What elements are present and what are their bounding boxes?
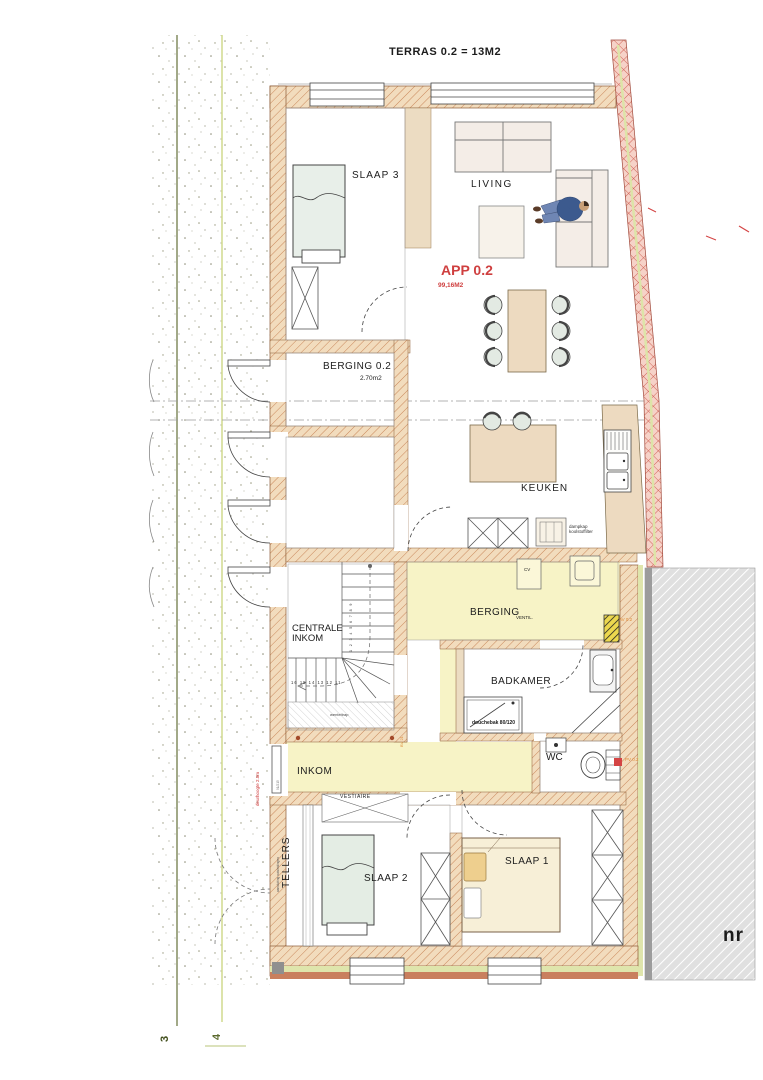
neighbor-building	[645, 568, 755, 980]
kitchen-sink	[604, 430, 631, 492]
room-label-vestiaire: VESTIAIRE	[340, 795, 371, 801]
washing-machine	[570, 556, 600, 586]
furniture-slaap3	[292, 165, 345, 329]
room-label-berging02: BERGING 0.2	[323, 361, 391, 372]
duct-code-berging: AV 0.2	[619, 618, 632, 623]
furniture-living	[455, 122, 608, 267]
door-height-note: deurhoogte 2.5m	[256, 772, 261, 806]
furniture-dining	[484, 290, 570, 372]
room-label-keuken: KEUKEN	[521, 483, 568, 494]
hood-appliance	[536, 518, 566, 546]
shower-note: douchebak 80/120	[472, 721, 515, 727]
hood-note: dampkap koolstoffilter	[569, 525, 593, 535]
furniture-slaap2	[322, 794, 450, 945]
vent-shaft	[604, 615, 619, 642]
grid-label-4: 4	[211, 1034, 223, 1040]
wardrobe-icon	[292, 267, 318, 329]
window-bottom-1	[350, 958, 404, 984]
room-area-berging02: 2.70m2	[360, 375, 382, 382]
washbasin	[590, 650, 616, 692]
door-size-note: 91/215	[277, 780, 281, 790]
window-top-2	[431, 83, 594, 104]
room-label-slaap3: SLAAP 3	[352, 170, 399, 181]
bed-icon	[293, 165, 345, 263]
kitchen-island	[470, 425, 556, 482]
stair-hatch-label: wenteltrap	[330, 713, 348, 717]
wardrobe-icon	[421, 853, 450, 945]
apartment-code: APP 0.2	[441, 263, 493, 278]
wardrobe-icon	[592, 810, 623, 945]
door-code-note: BV 21	[400, 736, 404, 747]
cv-unit	[517, 559, 541, 589]
room-label-slaap2: SLAAP 2	[364, 873, 408, 884]
door-arc-keuken	[408, 507, 452, 551]
room-label-centrale-inkom: CENTRALE INKOM	[292, 624, 350, 645]
dining-table	[508, 290, 546, 372]
neighbor-number-label: nr	[723, 926, 744, 947]
ventil-label: VENTIL.	[516, 616, 533, 621]
floor-plan-drawing: 16 15 14 13 12 11 1 2 3 4 5 6 7 8 9	[0, 0, 763, 1080]
sofa-icon	[455, 122, 608, 267]
shower-tray	[464, 697, 522, 733]
coffee-table	[479, 206, 524, 258]
terras-label: TERRAS 0.2 = 13M2	[330, 46, 560, 58]
corner-block	[272, 962, 284, 974]
window-bottom-2	[488, 958, 541, 984]
bed-icon	[322, 835, 374, 935]
double-bed-icon	[462, 838, 560, 932]
floor-plan-page: 16 15 14 13 12 11 1 2 3 4 5 6 7 8 9	[0, 0, 763, 1080]
room-label-badkamer: BADKAMER	[491, 676, 551, 687]
duct-marker-wc	[614, 758, 622, 766]
grid-label-3: 3	[159, 1036, 171, 1042]
duct-code-wc: PV 0.2	[625, 758, 639, 763]
cv-label: CV	[524, 568, 530, 573]
terrain-strip	[150, 35, 270, 985]
room-label-living: LIVING	[471, 179, 513, 190]
room-label-slaap1: SLAAP 1	[505, 856, 549, 867]
tellers-note: aansluiting nutsleidingen	[277, 857, 281, 892]
stair-step-numbers: 16 15 14 13 12 11	[291, 680, 341, 685]
window-top-1	[310, 83, 384, 106]
apartment-area: 99,16M2	[438, 282, 463, 289]
room-label-tellers: TELLERS	[281, 837, 292, 888]
furniture-keuken	[468, 405, 646, 553]
room-label-wc: WC	[546, 752, 563, 763]
room-label-berging: BERGING	[470, 607, 520, 618]
door-arc-slaap3	[362, 287, 407, 332]
kitchen-cabinets	[468, 518, 528, 548]
staircase: 16 15 14 13 12 11 1 2 3 4 5 6 7 8 9	[288, 562, 394, 730]
room-label-inkom: INKOM	[297, 766, 332, 777]
